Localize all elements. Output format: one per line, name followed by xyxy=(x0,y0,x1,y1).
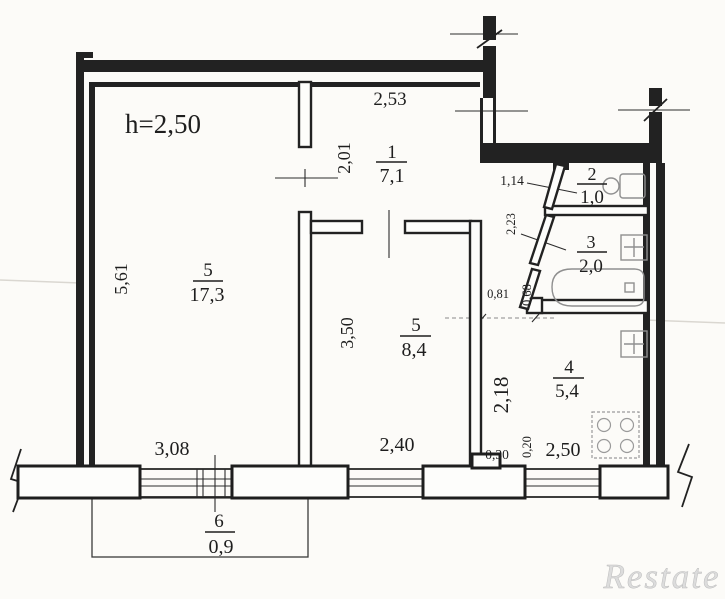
dim-kitchen-depth: 2,18 xyxy=(489,377,513,414)
room-number: 1 xyxy=(387,142,397,163)
dim-room2-width: 2,40 xyxy=(380,434,415,456)
room-number: 5 xyxy=(411,315,421,336)
room-number: 3 xyxy=(587,232,596,252)
room-area: 1,0 xyxy=(580,187,604,208)
floor-plan-scan: h=2,50 5 17,3 1 7,1 2 1,0 3 2,0 5 8,4 xyxy=(0,0,725,599)
dim-bath-wall: 2,23 xyxy=(504,213,518,235)
room-area: 2,0 xyxy=(579,256,603,277)
dim-pier-step-b: 0,20 xyxy=(520,436,534,458)
dim-pier-step-a: 0,30 xyxy=(485,447,509,462)
room-number: 5 xyxy=(203,260,213,281)
room-area: 0,9 xyxy=(209,536,234,558)
dim-kitchen-width: 2,50 xyxy=(546,439,581,461)
room-area: 5,4 xyxy=(555,381,579,402)
dim-living-depth: 5,61 xyxy=(111,263,131,295)
room-area: 17,3 xyxy=(190,284,225,306)
dim-bath-seg: 0,68 xyxy=(520,284,534,306)
dim-room2-depth: 3,50 xyxy=(337,317,357,349)
ceiling-height-label: h=2,50 xyxy=(125,109,201,139)
room-number: 2 xyxy=(588,164,597,184)
dim-living-width: 3,08 xyxy=(155,438,190,460)
dim-hall-depth: 2,01 xyxy=(334,142,354,174)
dim-hall-width: 2,53 xyxy=(373,89,406,110)
room-number: 6 xyxy=(214,511,224,532)
room-area: 8,4 xyxy=(402,339,427,361)
room-number: 4 xyxy=(564,357,574,378)
floor-plan-drawing: h=2,50 5 17,3 1 7,1 2 1,0 3 2,0 5 8,4 xyxy=(0,0,725,599)
dim-wc-width: 1,14 xyxy=(500,173,524,188)
room-area: 7,1 xyxy=(380,165,405,187)
dim-kitchen-door: 0,81 xyxy=(487,287,509,301)
watermark: Restate xyxy=(602,557,720,596)
